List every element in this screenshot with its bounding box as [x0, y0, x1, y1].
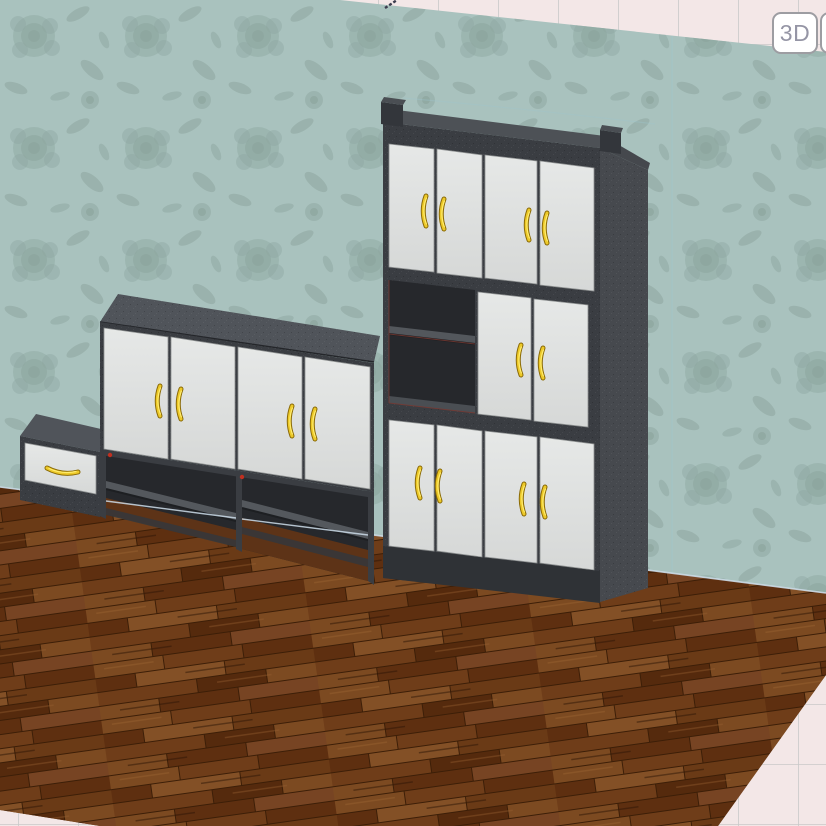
- partial-edge-button[interactable]: [820, 12, 826, 54]
- shelf-base-left-stile: [100, 449, 106, 519]
- tall-cabinet-left-wing: [381, 102, 403, 127]
- shelf-base-right-stile: [368, 491, 374, 585]
- tall-cabinet-door-top-1[interactable]: [389, 144, 434, 272]
- shelf-base-divider: [236, 471, 242, 552]
- niche-interior: [389, 280, 475, 413]
- tall-cabinet-niche: [389, 280, 475, 413]
- tall-cabinet-side-texture: [600, 148, 648, 602]
- connector-dot-1: [108, 453, 112, 457]
- tall-cabinet-door-bot-1[interactable]: [389, 420, 434, 551]
- tall-cabinet-door-mid-1[interactable]: [478, 292, 531, 420]
- scene-3d-view: [0, 0, 826, 826]
- tall-cabinet-door-bot-4[interactable]: [540, 437, 594, 570]
- connector-dot-2: [240, 475, 244, 479]
- tall-cabinet-door-bot-3[interactable]: [485, 431, 537, 563]
- tall-cabinet-door-top-4[interactable]: [540, 161, 594, 291]
- mode-3d-button[interactable]: 3D: [772, 12, 818, 54]
- drawer-unit[interactable]: [20, 414, 114, 517]
- tall-cabinet-right-wing: [600, 130, 621, 154]
- mode-3d-button-label: 3D: [780, 20, 810, 47]
- tall-cabinet[interactable]: [381, 97, 650, 603]
- tall-cabinet-door-bot-2[interactable]: [437, 425, 482, 557]
- tall-cabinet-door-top-3[interactable]: [485, 155, 537, 284]
- design-canvas: 3D: [0, 0, 826, 826]
